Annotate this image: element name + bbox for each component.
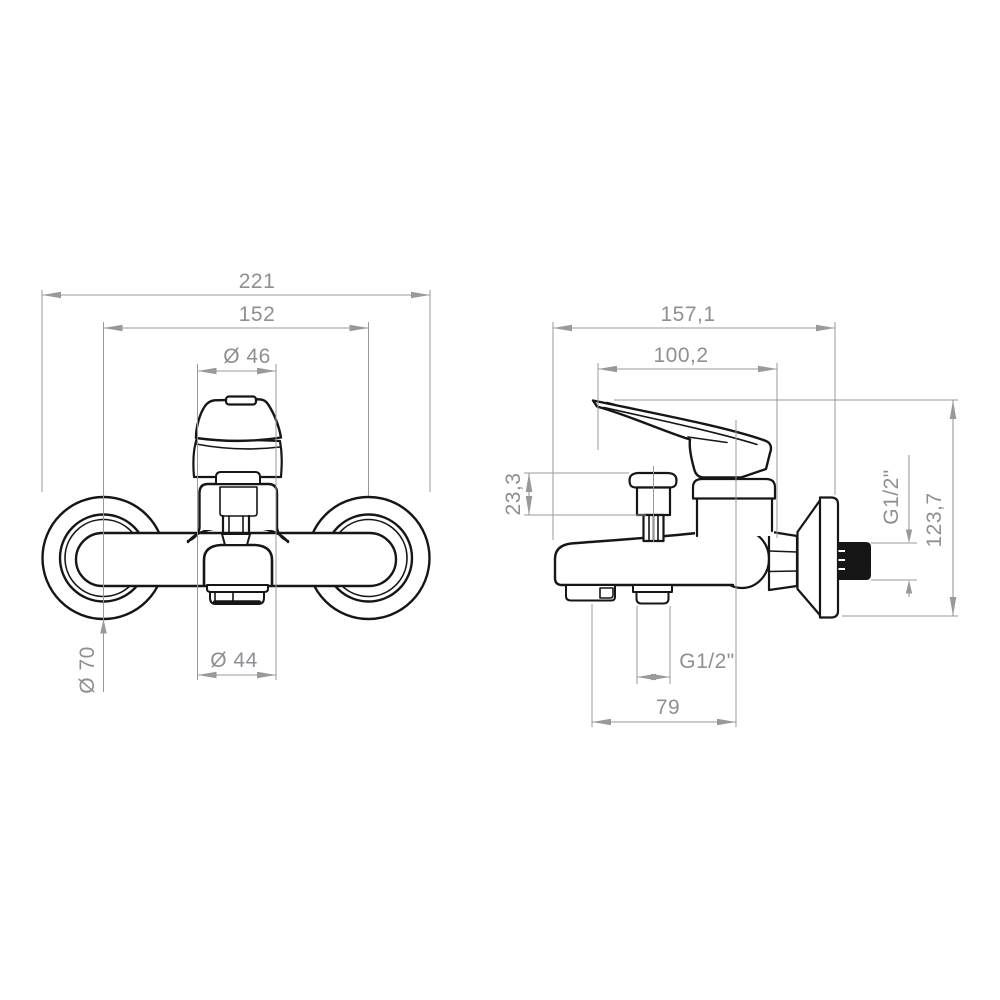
- technical-drawing-page: 221 152 Ø 46 Ø 70 Ø 44: [0, 0, 1000, 1000]
- aerator-side: [566, 585, 615, 601]
- wall-flange-cone: [798, 498, 823, 618]
- aerator-cap: [207, 585, 268, 604]
- dim-spout-reach-label: 79: [656, 696, 680, 719]
- cartridge-stem-foot: [222, 534, 250, 545]
- cartridge-cap: [693, 479, 775, 499]
- dim-aerator-diameter-label: Ø 44: [210, 649, 258, 672]
- front-view: [43, 397, 430, 620]
- dimension-escutcheon-diameter: Ø 70: [76, 619, 107, 694]
- side-view: [555, 401, 871, 728]
- lever-tip-front: [226, 397, 256, 405]
- dim-hole-spacing-label: 152: [239, 303, 276, 326]
- dim-total-depth-label: 157,1: [660, 303, 715, 326]
- dim-overall-width-label: 221: [239, 270, 276, 293]
- dimension-aerator-diameter: Ø 44: [198, 649, 277, 675]
- dim-escutcheon-diameter-label: Ø 70: [76, 646, 99, 694]
- wall-flange-plate: [820, 498, 838, 618]
- dim-handle-diameter-label: Ø 46: [223, 345, 271, 368]
- dim-handle-projection-label: 100,2: [653, 344, 708, 367]
- dim-outlet-thread-label: G1/2": [679, 650, 734, 673]
- side-mixer-body: [693, 479, 775, 536]
- handle-collar: [216, 472, 260, 484]
- wall-thread-connector: [838, 542, 871, 580]
- dim-wall-thread-label: G1/2": [880, 469, 903, 524]
- spout-arch: [204, 545, 272, 584]
- dim-diverter-height-label: 23,3: [502, 473, 525, 516]
- dim-total-height-label: 123,7: [923, 492, 946, 547]
- side-lever-handle: [593, 401, 771, 478]
- dimension-diverter-height: 23,3: [502, 473, 646, 516]
- dimension-wall-thread: G1/2": [871, 455, 917, 597]
- shower-hose-outlet: [633, 585, 672, 604]
- faucet-dimensional-drawing: 221 152 Ø 46 Ø 70 Ø 44: [0, 0, 1000, 1000]
- hex-nut: [769, 532, 797, 591]
- dimension-outlet-thread: G1/2": [637, 606, 735, 684]
